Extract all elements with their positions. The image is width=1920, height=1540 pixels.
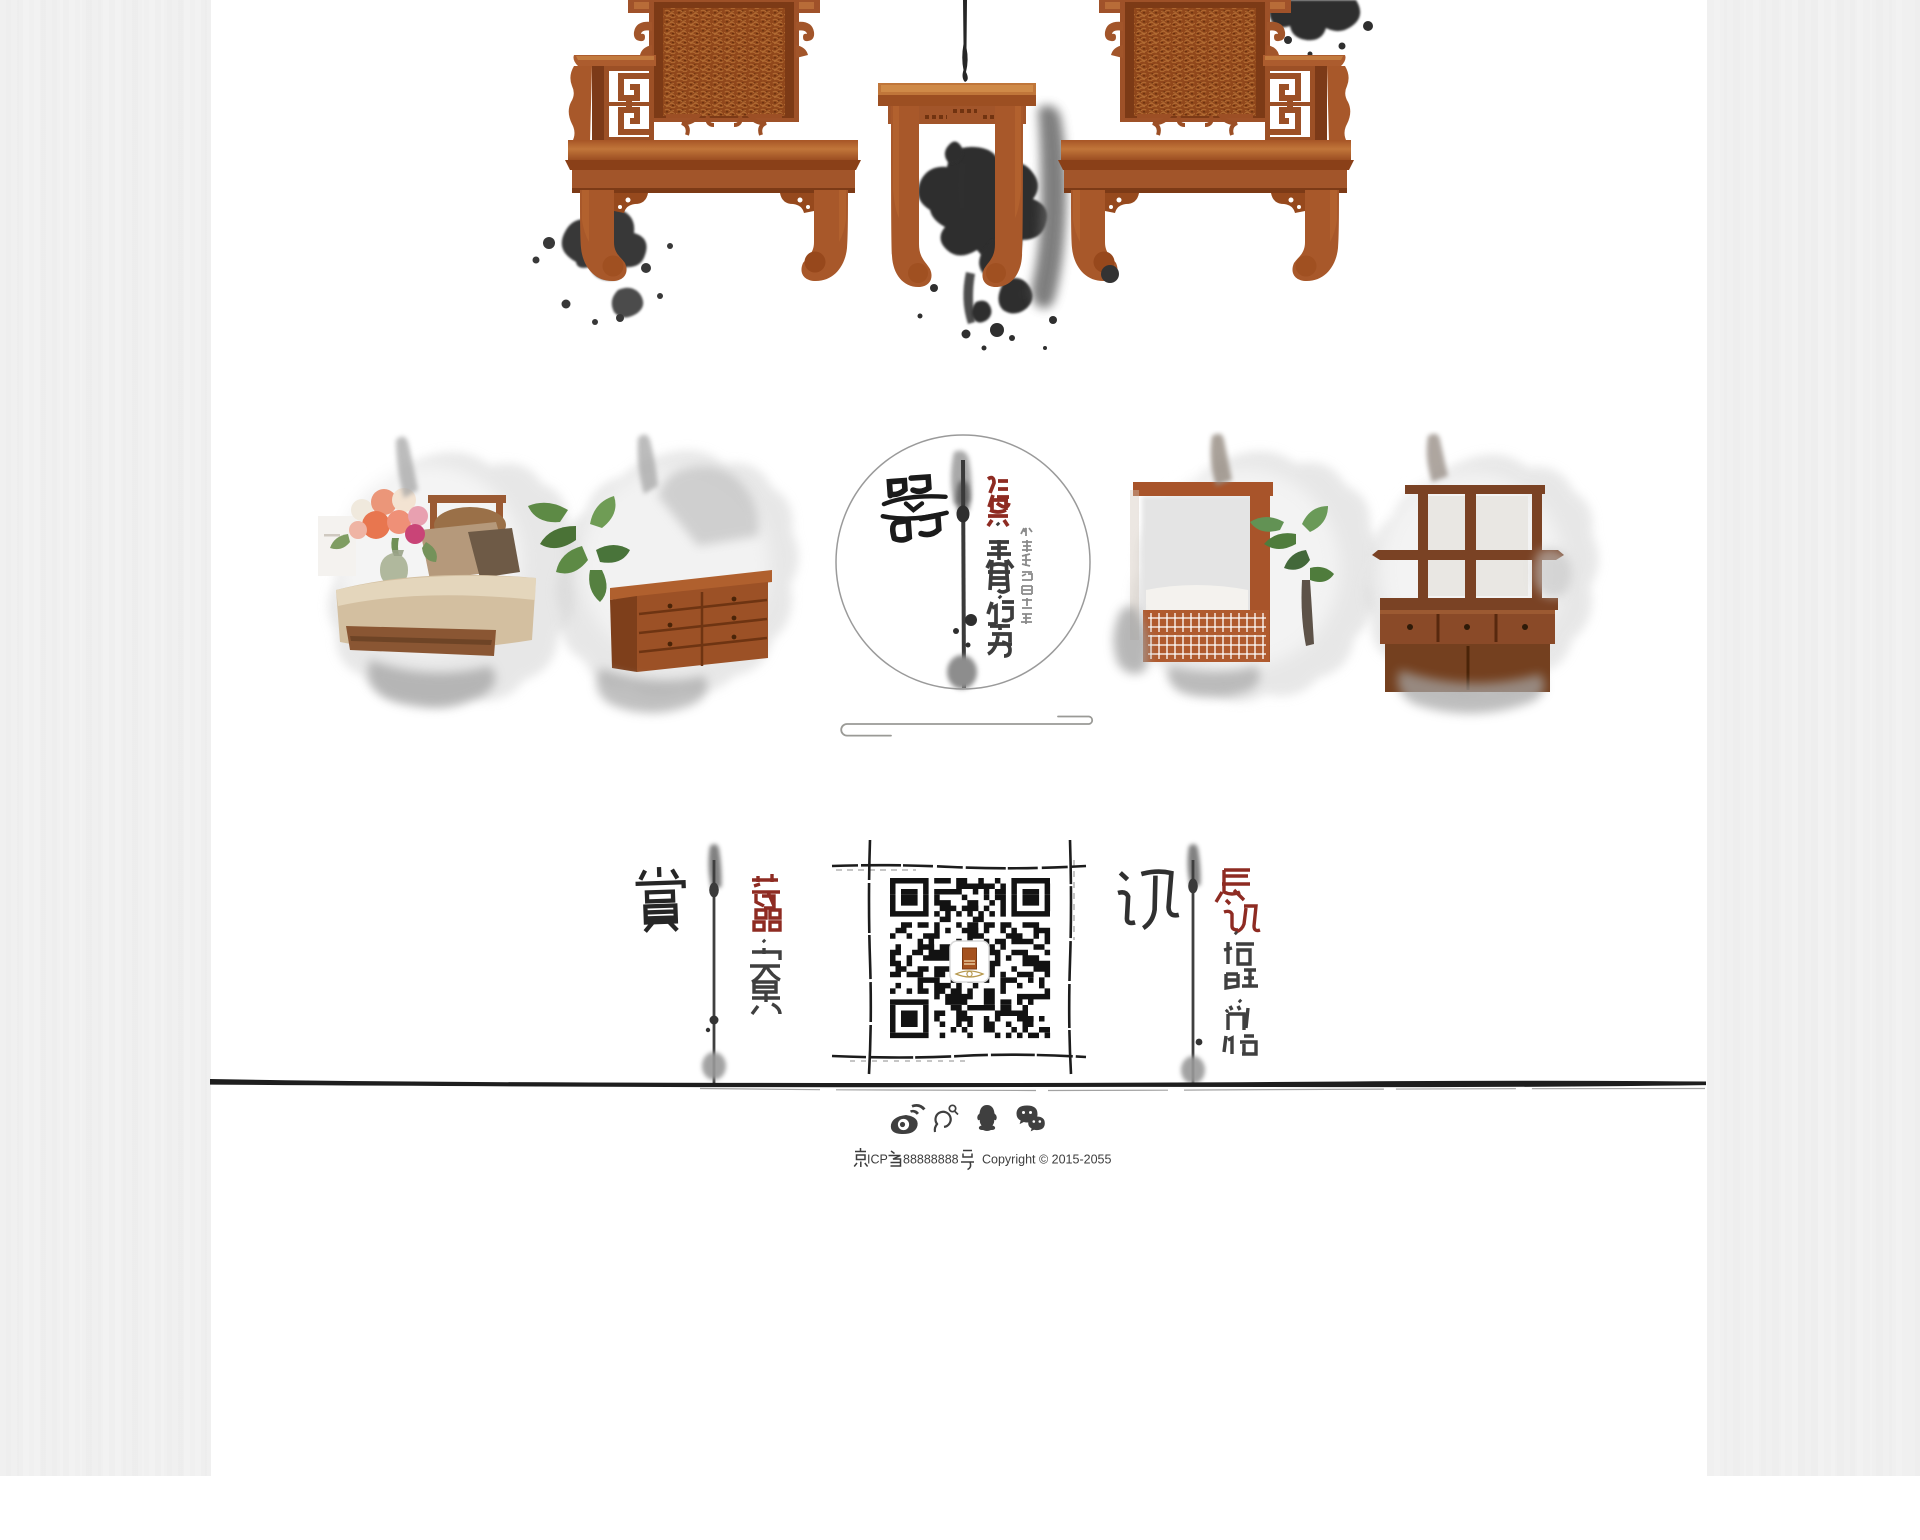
svg-text:88888888: 88888888 (903, 1153, 959, 1167)
svg-text:ICP: ICP (867, 1153, 888, 1167)
svg-text:Copyright © 2015-2055: Copyright © 2015-2055 (982, 1153, 1111, 1167)
